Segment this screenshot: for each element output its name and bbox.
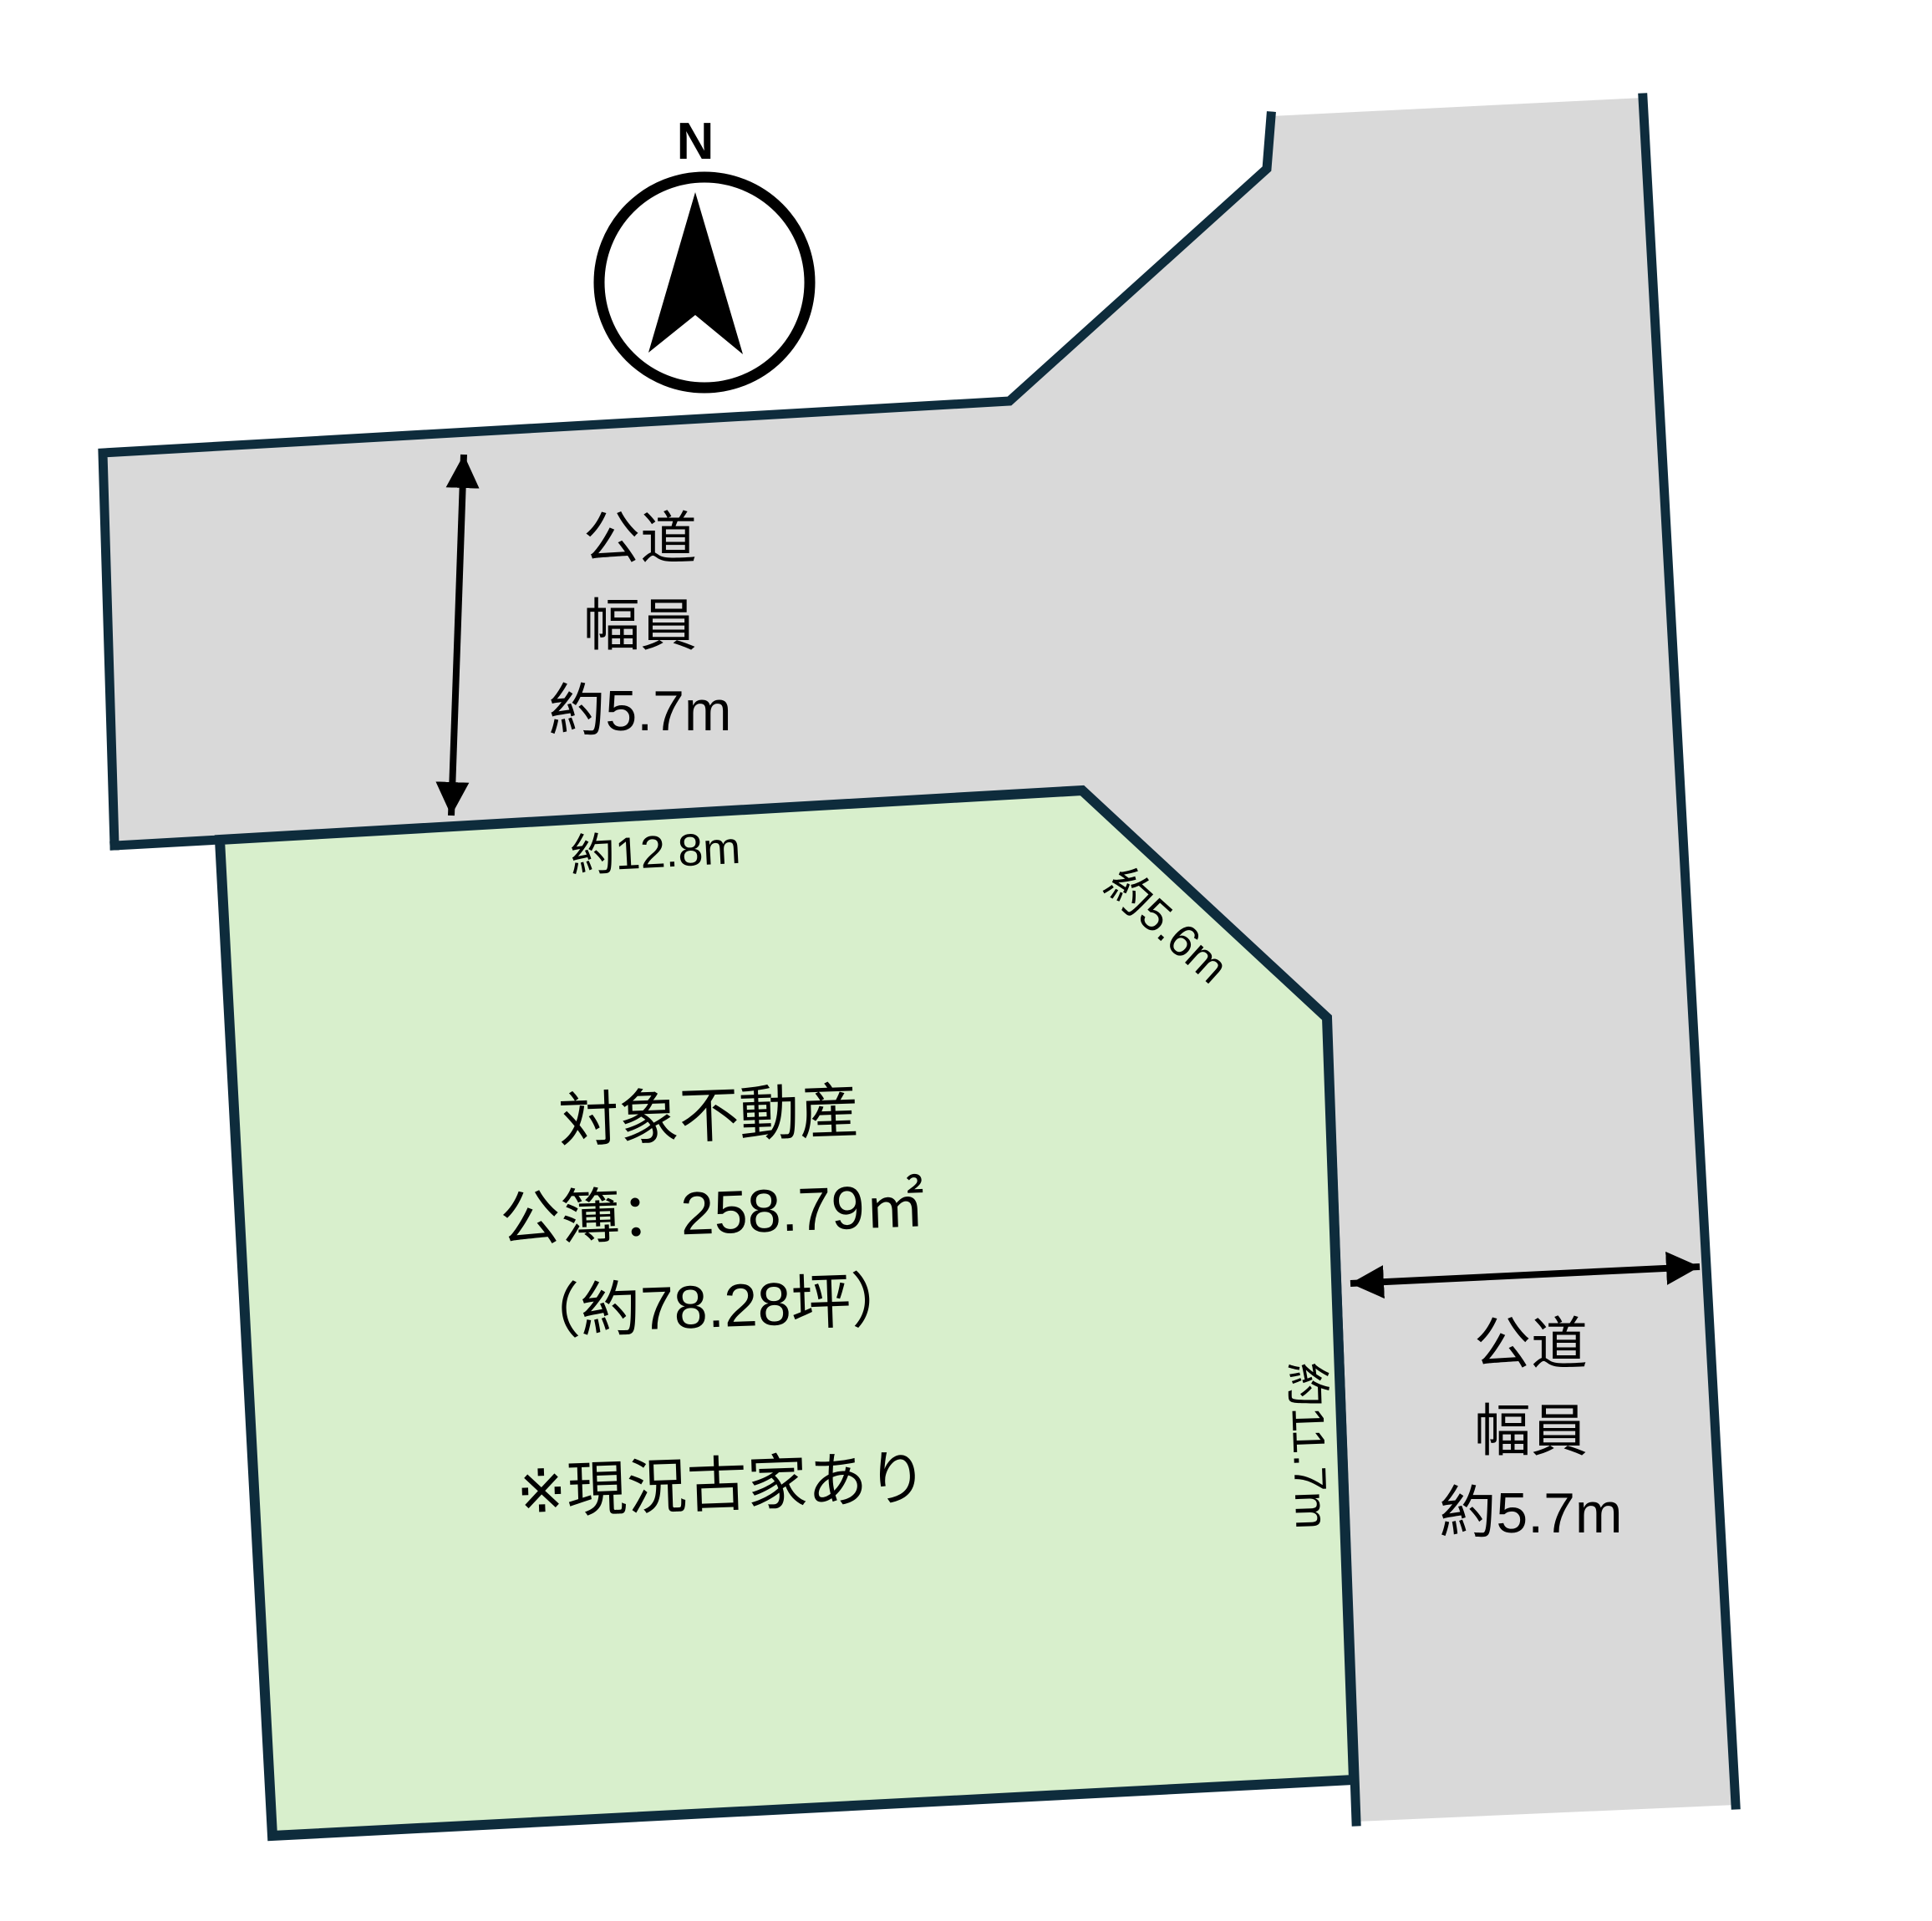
- dimension-top-edge: 約12.8m: [569, 823, 742, 882]
- compass-north-label: N: [677, 113, 714, 170]
- road-right-name: 公道: [1474, 1313, 1588, 1376]
- road-right-width-label: 幅員: [1474, 1400, 1588, 1463]
- road-left-width-label: 幅員: [583, 594, 697, 658]
- road-right-width-value: 約5.7m: [1439, 1481, 1622, 1545]
- plot-diagram-canvas: N 公道 幅員 約5.7m 公道 幅員 約5.7m 約12.8m 約5.6m 約…: [0, 0, 1932, 1921]
- plot-area-tsubo: （約78.28坪）: [519, 1267, 913, 1347]
- compass-icon: N: [599, 113, 810, 388]
- road-left-name: 公道: [583, 507, 697, 571]
- dimension-right-edge: 約11.7m: [1281, 1361, 1337, 1530]
- plot-title: 対象不動産: [557, 1078, 861, 1156]
- land-plot-diagram: N 公道 幅員 約5.7m 公道 幅員 約5.7m 約12.8m 約5.6m 約…: [0, 0, 1932, 1921]
- road-left-width-value: 約5.7m: [548, 679, 731, 743]
